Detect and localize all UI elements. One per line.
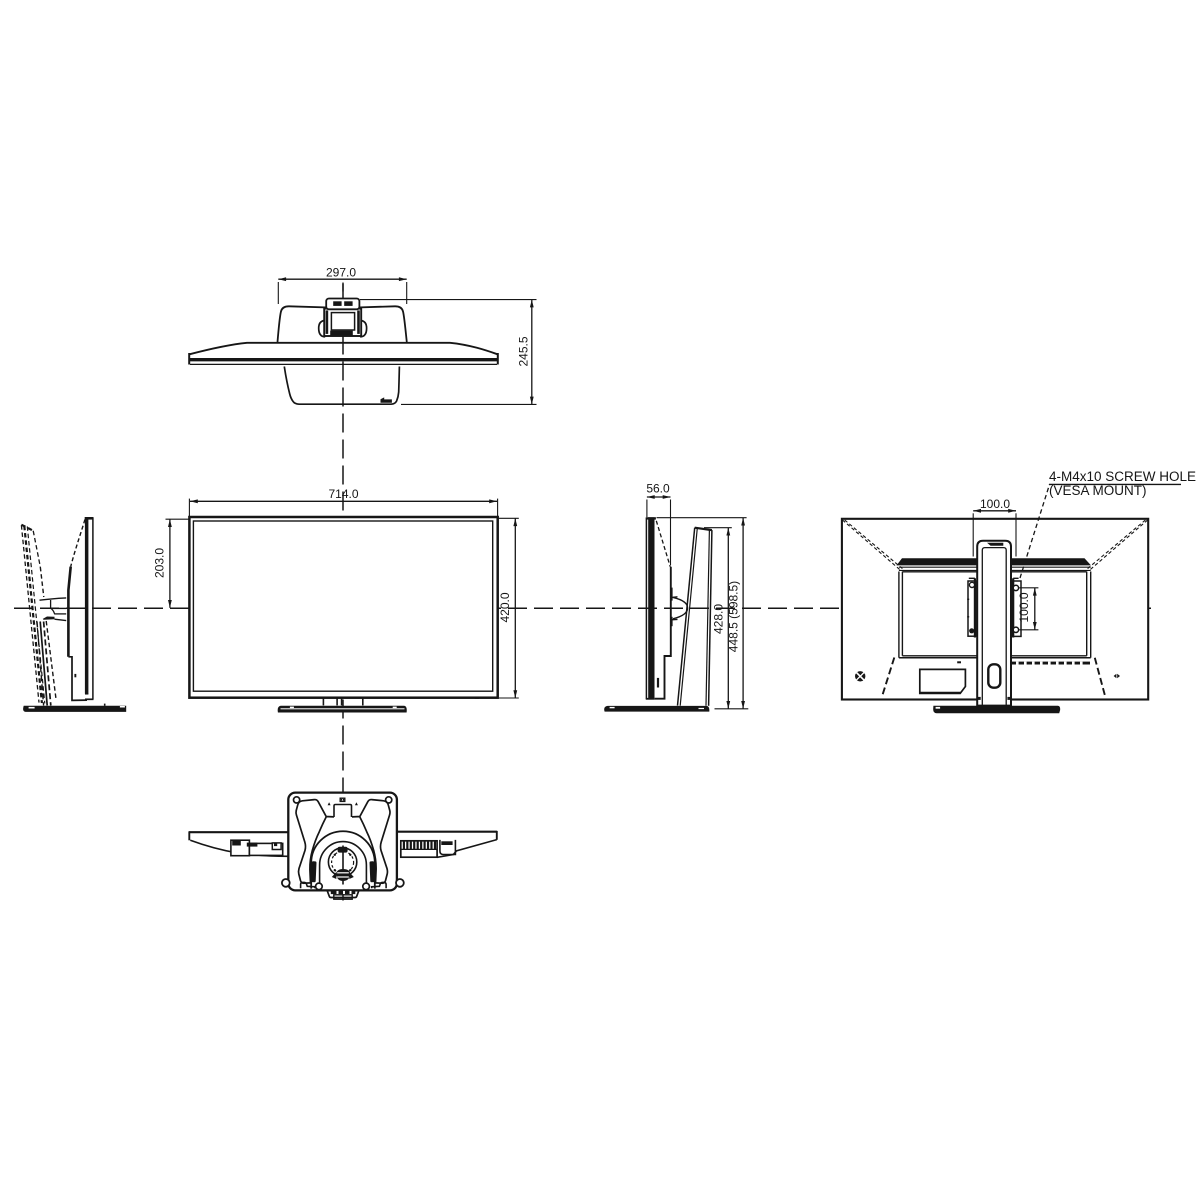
- svg-text:245.5: 245.5: [517, 336, 531, 366]
- svg-text:297.0: 297.0: [326, 266, 356, 280]
- svg-text:203.0: 203.0: [153, 548, 167, 578]
- svg-text:448.5 (598.5): 448.5 (598.5): [727, 581, 741, 652]
- svg-text:714.0: 714.0: [328, 487, 358, 501]
- svg-text:420.0: 420.0: [498, 592, 512, 622]
- svg-text:100.0: 100.0: [1017, 592, 1031, 622]
- svg-text:428.0: 428.0: [711, 604, 725, 634]
- svg-text:56.0: 56.0: [646, 481, 670, 495]
- svg-text:100.0: 100.0: [980, 497, 1010, 511]
